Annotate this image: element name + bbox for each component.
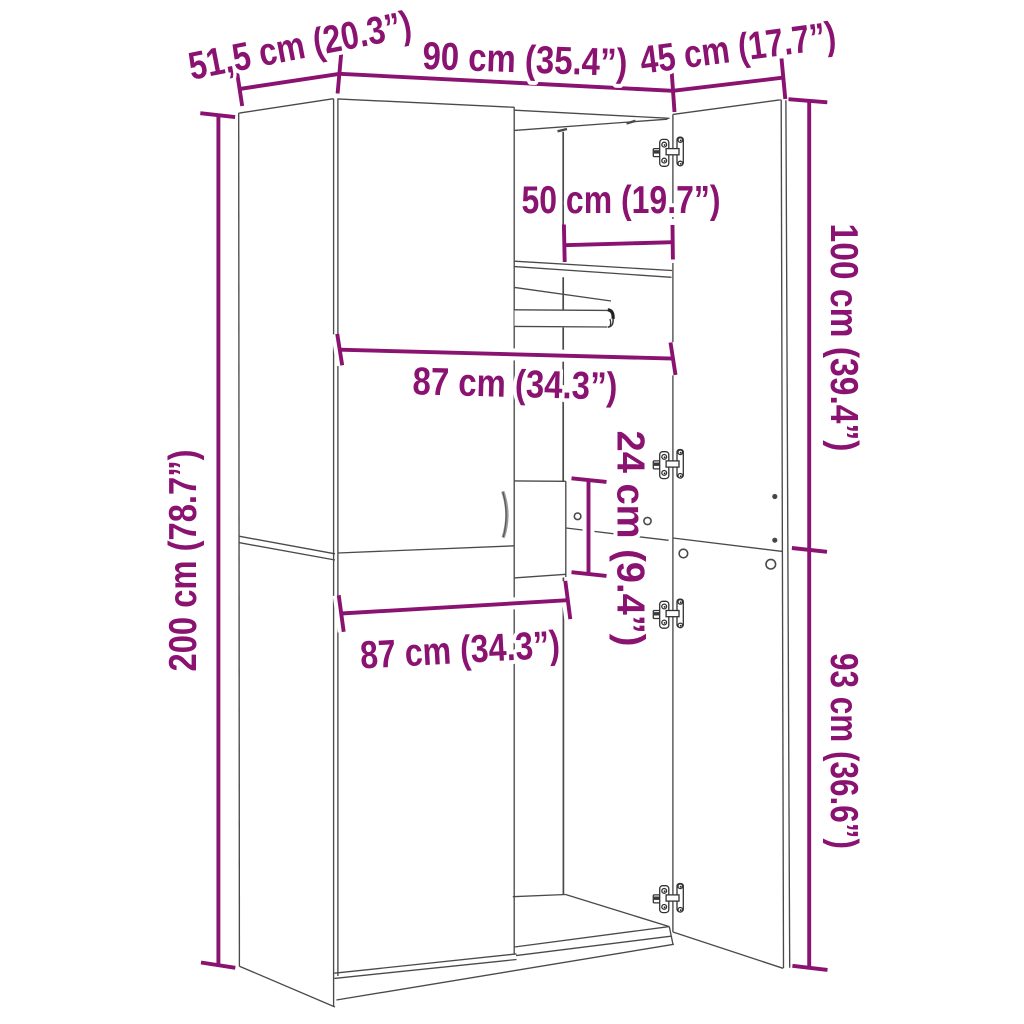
svg-text:50 cm (19.7”): 50 cm (19.7”) <box>522 179 721 222</box>
svg-text:87 cm (34.3”): 87 cm (34.3”) <box>412 360 618 408</box>
svg-text:200 cm (78.7”): 200 cm (78.7”) <box>162 450 205 672</box>
svg-text:90 cm (35.4”): 90 cm (35.4”) <box>422 35 628 85</box>
svg-text:24 cm (9.4”): 24 cm (9.4”) <box>609 431 652 647</box>
svg-text:93 cm (36.6”): 93 cm (36.6”) <box>822 653 865 849</box>
svg-text:100 cm (39.4”): 100 cm (39.4”) <box>822 224 865 452</box>
